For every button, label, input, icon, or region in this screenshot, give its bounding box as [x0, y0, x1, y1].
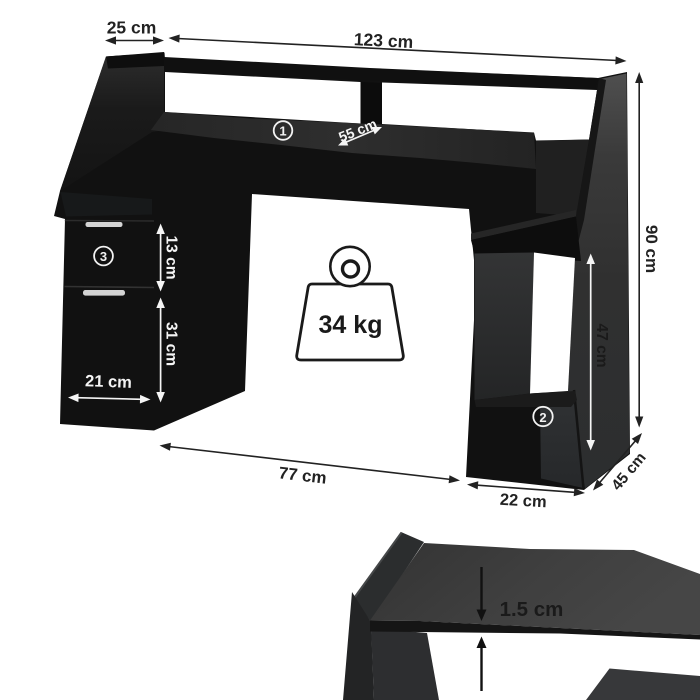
svg-text:1.5 cm: 1.5 cm — [500, 598, 564, 621]
svg-text:47 cm: 47 cm — [593, 324, 610, 368]
svg-text:21 cm: 21 cm — [85, 372, 132, 392]
svg-text:2: 2 — [539, 410, 546, 425]
svg-text:34 kg: 34 kg — [319, 311, 383, 339]
svg-text:90 cm: 90 cm — [642, 225, 661, 273]
svg-text:22 cm: 22 cm — [499, 491, 547, 511]
svg-text:13 cm: 13 cm — [163, 236, 180, 280]
svg-text:1: 1 — [279, 124, 286, 139]
svg-text:25 cm: 25 cm — [107, 18, 157, 38]
svg-text:3: 3 — [100, 249, 107, 264]
svg-text:31 cm: 31 cm — [163, 322, 180, 366]
